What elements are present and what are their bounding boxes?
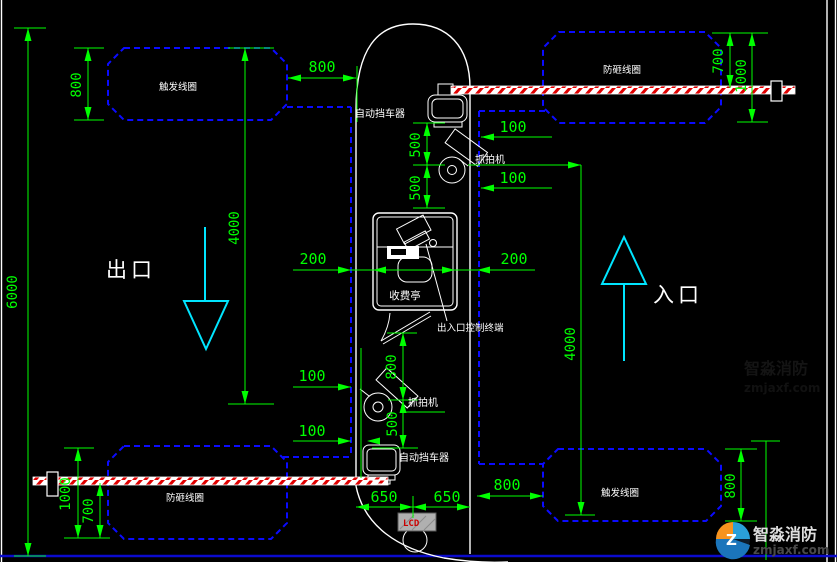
- label-coil-top-left: 触发线圈: [159, 81, 197, 93]
- svg-text:700: 700: [81, 498, 97, 523]
- svg-text:智淼消防: 智淼消防: [744, 359, 808, 378]
- watermark-site: zmjaxf.com: [753, 543, 829, 557]
- svg-text:4000: 4000: [563, 327, 579, 361]
- svg-text:200: 200: [500, 250, 527, 268]
- dim-650: 650 650: [356, 488, 470, 518]
- svg-text:800: 800: [69, 72, 85, 97]
- svg-text:100: 100: [499, 118, 526, 136]
- svg-text:500: 500: [408, 175, 424, 200]
- svg-text:6000: 6000: [5, 275, 21, 309]
- svg-text:500: 500: [385, 411, 401, 436]
- dim-800-bottom-v: 800: [723, 449, 757, 521]
- cad-parking-layout-drawing: LCD 6000 800: [0, 0, 837, 562]
- svg-text:100: 100: [298, 367, 325, 385]
- label-barrier-top: 自动挡车器: [355, 107, 405, 120]
- dim-100-bottom-2: 100: [293, 422, 380, 445]
- label-coil-bottom-left: 防砸线圈: [166, 492, 204, 504]
- label-coil-bottom-right: 触发线圈: [601, 487, 639, 499]
- dim-100-top-2: 100: [481, 169, 552, 192]
- dim-800-top: 800: [288, 58, 357, 122]
- dim-800-bottom-h: 800: [477, 476, 543, 500]
- dim-800-left: 800: [69, 48, 104, 120]
- svg-text:1000: 1000: [58, 477, 74, 511]
- barrier-arm-bottom: [33, 472, 388, 496]
- dim-700-bottom-left: 700: [81, 483, 104, 538]
- island-bottom-details: LCD: [398, 513, 436, 552]
- dim-100-bottom-1: 100: [293, 367, 351, 391]
- svg-text:650: 650: [433, 488, 460, 506]
- arm-bracket-bottom: [47, 472, 58, 496]
- watermark-brand: 智淼消防: [753, 525, 817, 544]
- dim-1000-top-right: 1000: [734, 33, 768, 122]
- loop-wiring: [283, 107, 547, 464]
- svg-text:700: 700: [711, 48, 727, 73]
- label-camera-top: 抓拍机: [475, 153, 505, 166]
- label-barrier-bottom: 自动挡车器: [399, 451, 449, 464]
- watermark: Z 智淼消防 zmjaxf.com: [716, 522, 830, 559]
- lcd-label: LCD: [403, 519, 420, 529]
- loop-top-left: [108, 48, 287, 120]
- svg-text:100: 100: [298, 422, 325, 440]
- svg-text:500: 500: [408, 132, 424, 157]
- label-toll-booth: 收费亭: [389, 289, 421, 302]
- label-camera-bottom: 抓拍机: [408, 396, 438, 409]
- label-exit: 出口: [106, 258, 156, 282]
- svg-text:800: 800: [493, 476, 520, 494]
- svg-text:200: 200: [299, 250, 326, 268]
- svg-text:800: 800: [308, 58, 335, 76]
- booth-door: [381, 312, 431, 344]
- svg-text:zmjaxf.com: zmjaxf.com: [744, 381, 820, 395]
- watermark-faint: 智淼消防 zmjaxf.com: [744, 359, 820, 395]
- dim-4000-left: 4000: [227, 48, 274, 404]
- label-control-terminal: 出入口控制终端: [437, 322, 504, 334]
- dim-4000-right: 4000: [468, 162, 595, 516]
- svg-text:800: 800: [723, 473, 739, 498]
- loop-bottom-right: [543, 449, 721, 521]
- drawing-canvas: LCD 6000 800: [0, 0, 837, 562]
- watermark-logo-icon: Z: [716, 522, 750, 559]
- svg-text:4000: 4000: [227, 211, 243, 245]
- label-coil-top-right: 防砸线圈: [603, 64, 641, 76]
- entrance-arrow: [602, 237, 646, 361]
- svg-text:100: 100: [499, 169, 526, 187]
- exit-arrow: [184, 227, 228, 349]
- svg-text:1000: 1000: [734, 59, 750, 93]
- label-entrance: 入口: [653, 283, 703, 307]
- svg-text:Z: Z: [726, 531, 737, 549]
- svg-text:800: 800: [384, 354, 400, 379]
- arm-bracket-top: [771, 81, 782, 101]
- dim-100-top-1: 100: [481, 118, 552, 141]
- lcd-panel: LCD: [398, 513, 436, 531]
- svg-text:650: 650: [370, 488, 397, 506]
- loop-top-right: [543, 32, 721, 123]
